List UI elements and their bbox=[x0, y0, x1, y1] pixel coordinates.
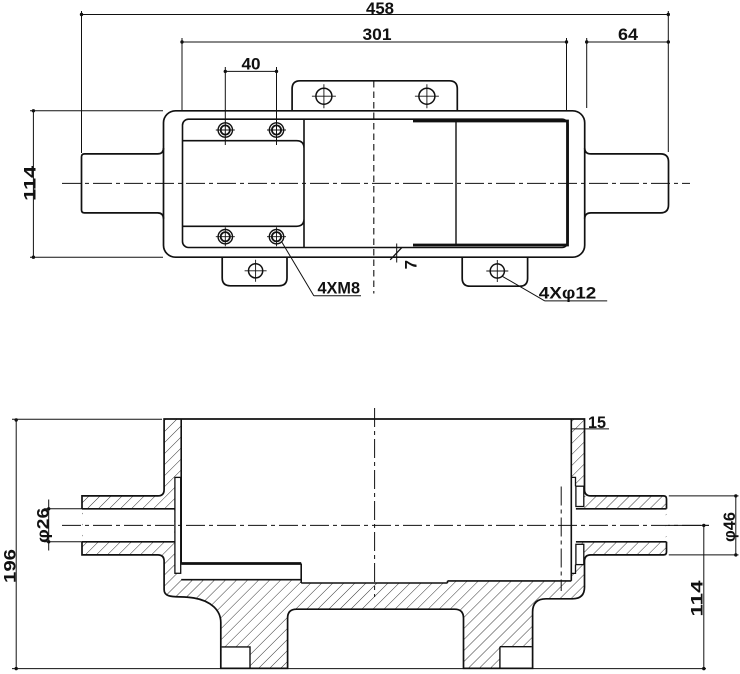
svg-text:64: 64 bbox=[618, 25, 639, 44]
svg-text:7: 7 bbox=[402, 260, 421, 269]
svg-text:40: 40 bbox=[242, 55, 261, 74]
svg-text:301: 301 bbox=[363, 25, 392, 44]
svg-text:458: 458 bbox=[366, 0, 394, 18]
svg-text:φ46: φ46 bbox=[720, 512, 739, 542]
svg-text:114: 114 bbox=[688, 580, 707, 617]
svg-text:φ26: φ26 bbox=[33, 508, 52, 543]
svg-text:15: 15 bbox=[588, 413, 606, 432]
svg-text:4XM8: 4XM8 bbox=[318, 279, 361, 298]
svg-text:196: 196 bbox=[1, 549, 20, 583]
svg-text:114: 114 bbox=[21, 165, 40, 201]
svg-text:4Xφ12: 4Xφ12 bbox=[539, 283, 597, 302]
